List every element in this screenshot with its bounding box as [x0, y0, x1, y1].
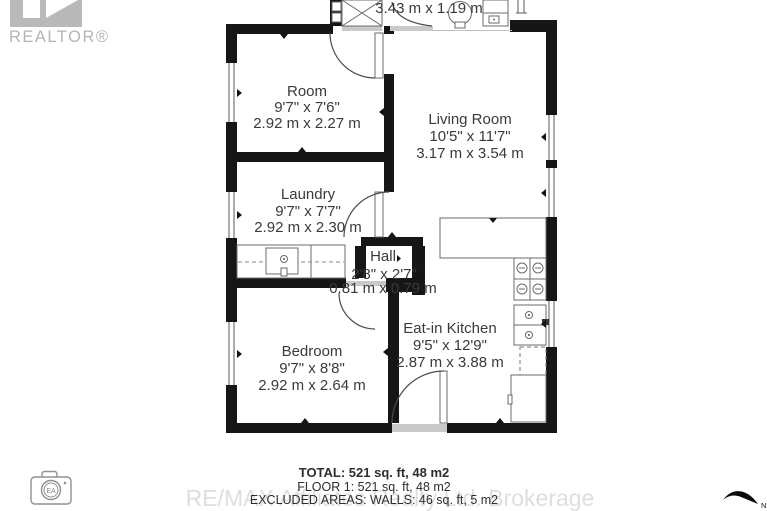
threshold-bath-door [390, 26, 433, 31]
realtor-label: REALTOR® [9, 28, 110, 46]
room-imperial-living: 10'5" x 11'7" [429, 128, 510, 145]
floorplan-canvas: REALTOR® RE/MAX Affiliates Realty Ltd. B… [0, 0, 767, 511]
room-door [330, 33, 383, 78]
window-left-room [226, 63, 237, 122]
room-metric-room: 2.92 m x 2.27 m [253, 115, 361, 132]
laundry-counter [237, 245, 345, 278]
room-metric-laundry: 2.92 m x 2.30 m [254, 219, 362, 236]
window-right-living-2 [546, 168, 557, 217]
dishwasher-fixture [520, 347, 546, 375]
room-name-kitchen: Eat-in Kitchen [403, 320, 496, 337]
camera-icon: EA [31, 472, 71, 505]
window-left-bedroom [226, 322, 237, 385]
room-imperial-bedroom: 9'7" x 8'8" [279, 360, 345, 377]
room-name-hall: Hall [370, 248, 396, 265]
room-name-living: Living Room [428, 111, 511, 128]
room-imperial-laundry: 9'7" x 7'7" [275, 203, 341, 220]
realtor-logo: REALTOR® [9, 0, 110, 46]
room-name-laundry: Laundry [281, 186, 336, 203]
summary-total: TOTAL: 521 sq. ft, 48 m2 [299, 465, 450, 480]
threshold-bath-shower [342, 26, 382, 31]
floorplan-page: REALTOR® RE/MAX Affiliates Realty Ltd. B… [0, 0, 767, 511]
bedroom-door-arc [339, 293, 375, 329]
north-arrow-icon: N [723, 491, 766, 510]
room-metric-hall: 0.81 m x 0.79 m [329, 280, 437, 297]
room-metric-bedroom: 2.92 m x 2.64 m [258, 377, 366, 394]
fridge-fixture [508, 375, 546, 422]
camera-badge-label: EA [46, 488, 56, 495]
bathroom-cabinet-fixture [483, 0, 508, 26]
room-metric-living: 3.17 m x 3.54 m [416, 145, 524, 162]
room-name-bedroom: Bedroom [282, 343, 343, 360]
room-metric-kitchen: 2.87 m x 3.88 m [396, 354, 504, 371]
summary-floor1: FLOOR 1: 521 sq. ft, 48 m2 [297, 480, 451, 494]
window-top-right [516, 0, 527, 13]
room-imperial-room: 9'7" x 7'6" [274, 99, 340, 116]
stove-fixture [514, 258, 546, 300]
room-name-room: Room [287, 83, 327, 100]
window-right-living-1 [546, 115, 557, 160]
kitchen-peninsula-counter [440, 218, 546, 258]
summary-excluded: EXCLUDED AREAS: WALLS: 46 sq. ft, 5 m2 [250, 493, 498, 507]
window-left-laundry [226, 192, 237, 238]
north-label: N [761, 501, 766, 510]
top-room-metric: 3.43 m x 1.19 m [375, 0, 483, 17]
room-imperial-kitchen: 9'5" x 12'9" [413, 337, 487, 354]
threshold-entry-door [392, 424, 447, 432]
entry-door [392, 371, 447, 423]
